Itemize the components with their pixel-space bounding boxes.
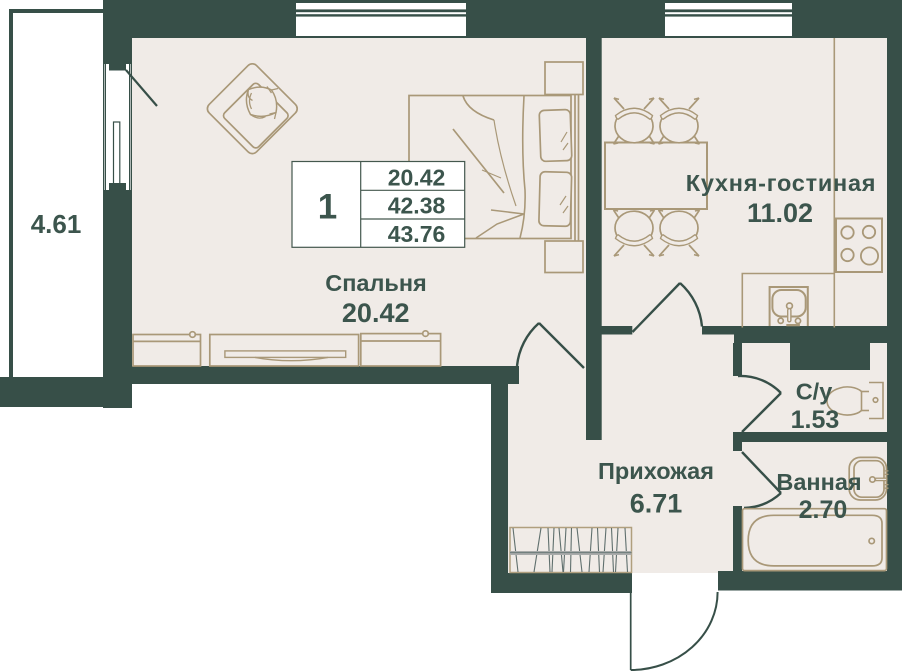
svg-text:Кухня-гостиная: Кухня-гостиная — [686, 170, 877, 196]
svg-text:20.42: 20.42 — [388, 164, 446, 190]
svg-text:С/у: С/у — [796, 379, 833, 405]
svg-text:Спальня: Спальня — [325, 270, 427, 296]
svg-text:6.71: 6.71 — [630, 489, 683, 519]
svg-text:43.76: 43.76 — [388, 221, 446, 247]
svg-text:Ванная: Ванная — [776, 469, 861, 495]
svg-text:2.70: 2.70 — [799, 496, 848, 524]
svg-text:1: 1 — [318, 188, 337, 227]
svg-text:11.02: 11.02 — [747, 198, 813, 228]
svg-text:1.53: 1.53 — [791, 406, 840, 434]
svg-text:42.38: 42.38 — [388, 193, 446, 219]
svg-text:Прихожая: Прихожая — [598, 458, 714, 484]
svg-text:20.42: 20.42 — [342, 298, 410, 328]
svg-text:4.61: 4.61 — [31, 209, 82, 239]
